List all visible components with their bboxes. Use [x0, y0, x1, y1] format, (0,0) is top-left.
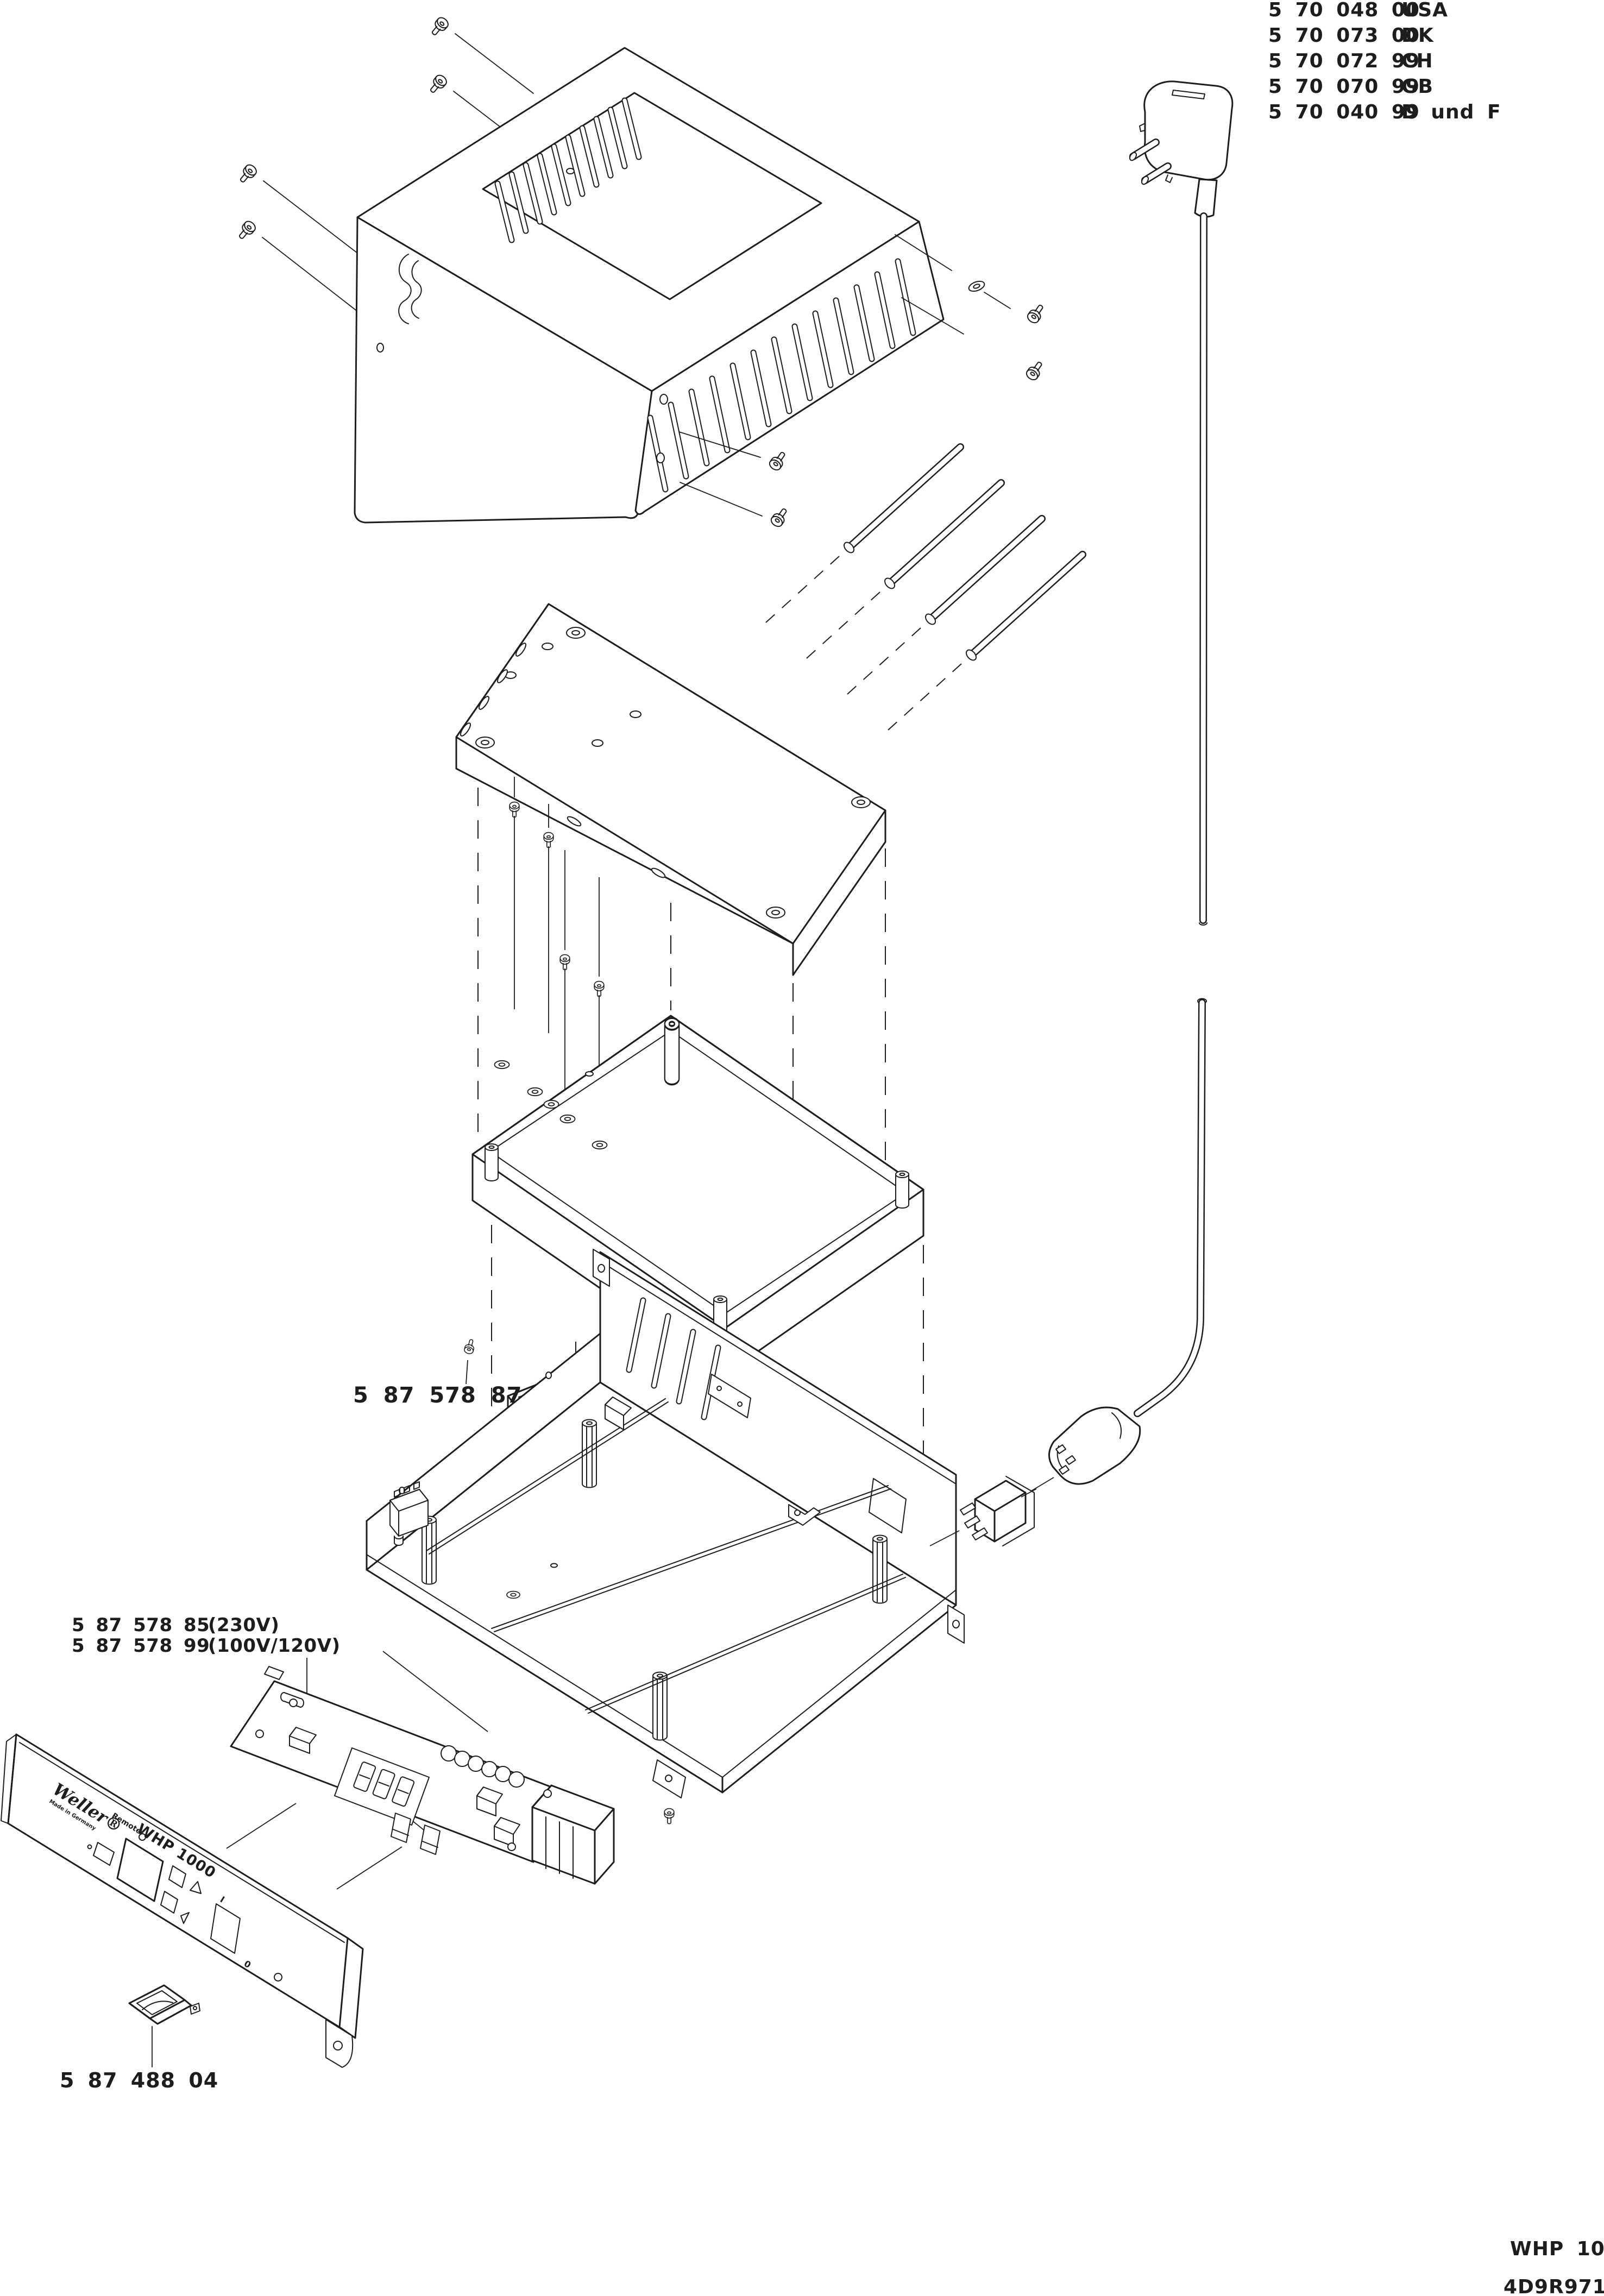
pcb-230v-voltage: (230V): [208, 1614, 279, 1636]
part-number: 5 70 048 00: [1268, 0, 1420, 21]
part-region: CH: [1401, 50, 1433, 72]
power-switch-label: 5 87 488 04: [60, 2068, 218, 2092]
exploded-parts-diagram: Weller® Made in Germany Remote WHP 1000 …: [0, 0, 1604, 2296]
part-region: GB: [1401, 76, 1433, 98]
pcb-230v-number: 5 87 578 85: [72, 1614, 210, 1636]
footer-drawing-ref: 4D9R971/2: [1504, 2276, 1604, 2296]
part-number: 5 70 072 99: [1268, 50, 1420, 72]
pcb-100v-voltage: (100V/120V): [208, 1635, 341, 1657]
part-region: USA: [1401, 0, 1448, 21]
part-region: DK: [1401, 24, 1434, 47]
part-number: 5 70 073 00: [1268, 24, 1420, 47]
terminal-block-label: 5 87 578 87: [353, 1383, 522, 1408]
footer-model: WHP 1000: [1510, 2238, 1604, 2260]
part-number: 5 70 070 99: [1268, 76, 1420, 98]
part-region: D und F: [1401, 101, 1501, 123]
part-number: 5 70 040 99: [1268, 101, 1420, 123]
pcb-100v-number: 5 87 578 99: [72, 1635, 210, 1657]
